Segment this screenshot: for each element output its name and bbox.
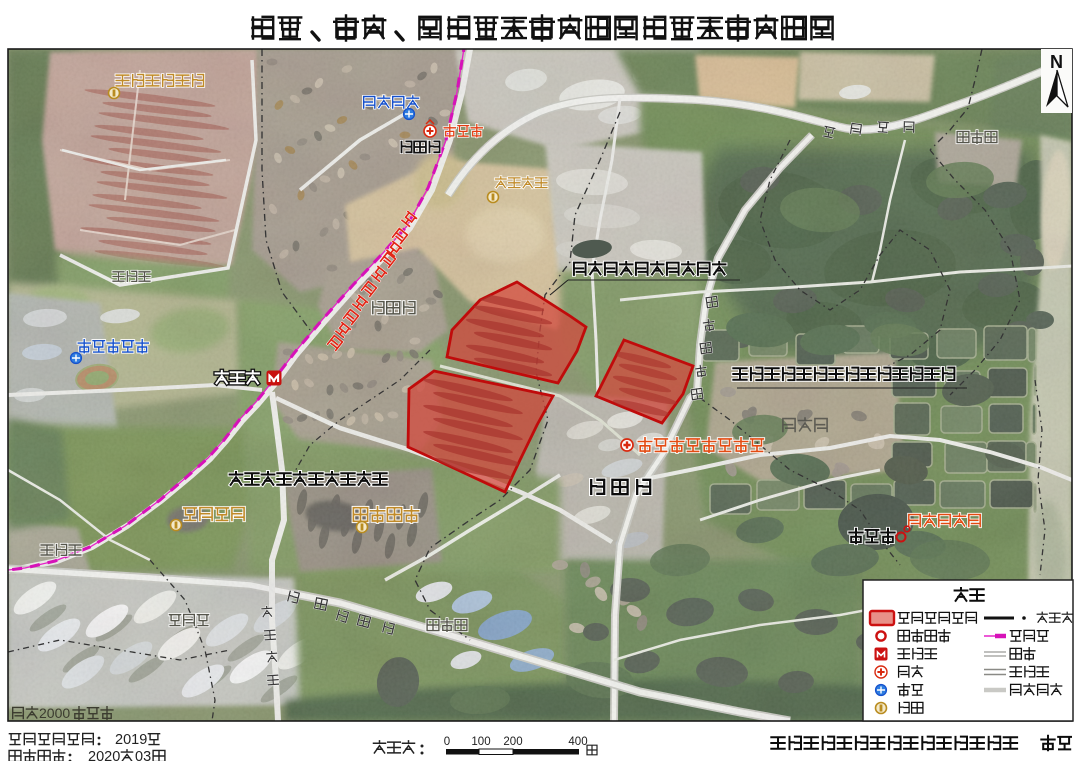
svg-text:0: 0 bbox=[444, 736, 450, 748]
svg-text:200: 200 bbox=[503, 736, 522, 748]
svg-text:2019: 2019 bbox=[115, 732, 147, 748]
svg-text:03: 03 bbox=[135, 749, 151, 761]
svg-text:400: 400 bbox=[568, 736, 587, 748]
svg-text:100: 100 bbox=[471, 736, 490, 748]
svg-text:2000: 2000 bbox=[39, 705, 70, 721]
svg-text:N: N bbox=[1050, 52, 1063, 72]
svg-text:2020: 2020 bbox=[88, 749, 120, 761]
